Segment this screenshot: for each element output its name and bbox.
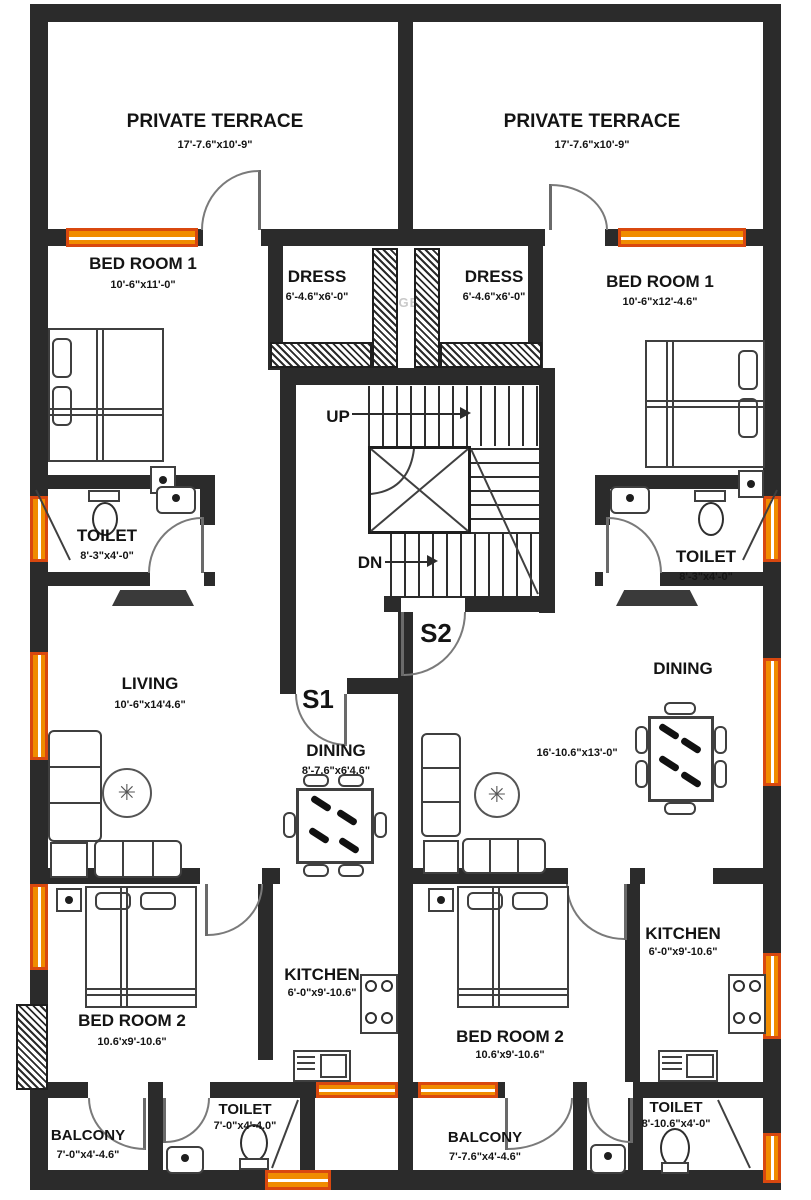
pillow <box>140 892 176 910</box>
room-label-bedroom1-left: BED ROOM 1 <box>89 255 197 272</box>
window-bedroom2-left <box>30 884 48 970</box>
room-label-kitchen-right: KITCHEN <box>645 925 721 942</box>
stool-left <box>50 842 88 878</box>
room-label-toilet-left: TOILET <box>77 527 137 544</box>
chair <box>283 812 296 838</box>
wall-bottomrow-e <box>573 1082 587 1098</box>
door-gap-toiletb-left <box>163 1082 210 1098</box>
plant-icon: ✳ <box>102 768 152 818</box>
bed-line <box>647 406 763 408</box>
room-dim-dining-right: 16'-10.6"x13'-0" <box>536 748 617 759</box>
room-dim-bedroom2-right: 10.6'x9'-10.6" <box>475 1050 544 1061</box>
window-kitchen-left-south <box>316 1082 398 1098</box>
sofa-vertical-right <box>421 733 461 837</box>
room-label-balcony-left: BALCONY <box>51 1128 125 1143</box>
bed-line <box>87 988 195 990</box>
wall-balcony-right-east <box>573 1098 587 1188</box>
sofa-cushion-line <box>423 767 459 769</box>
wall-balcony-left-east <box>148 1098 163 1188</box>
wall-stair-top <box>280 368 555 385</box>
sofa-cushion-line <box>423 801 459 803</box>
door-arc-toiletb-left <box>166 1098 210 1143</box>
window-living-left <box>30 652 48 760</box>
burner-icon <box>749 980 761 992</box>
sofa-cushion-line <box>517 840 519 872</box>
door-gap-niche-right <box>587 1082 633 1098</box>
sink-line <box>297 1068 315 1070</box>
door-gap-bedroom2-left <box>200 868 262 884</box>
burner-icon <box>365 1012 377 1024</box>
door-arc-toilet-right <box>608 517 662 573</box>
chair <box>635 760 648 788</box>
room-dim-kitchen-right: 6'-0"x9'-10.6" <box>649 947 718 958</box>
pillow <box>52 386 72 426</box>
room-label-bedroom1-right: BED ROOM 1 <box>606 273 714 290</box>
floor-plan: TIGER <box>0 0 811 1200</box>
chair <box>338 864 364 877</box>
stair-dn-arrow-icon <box>427 555 438 567</box>
wc-tank <box>661 1162 689 1174</box>
chair <box>714 726 727 754</box>
bedside-knob <box>747 480 755 488</box>
door-label-s2: S2 <box>420 620 452 646</box>
pillow <box>738 398 758 438</box>
room-label-toiletb-left: TOILET <box>218 1102 271 1117</box>
sink-line <box>662 1062 682 1064</box>
room-dim-dress-right: 6'-4.6"x6'-0" <box>463 292 526 303</box>
wardrobe-bedroom2-left <box>16 1004 48 1090</box>
tv-console-right <box>616 590 698 606</box>
window-terrace-left <box>66 228 198 247</box>
burner-icon <box>381 980 393 992</box>
stair-upper-flight <box>368 386 539 446</box>
chair <box>664 702 696 715</box>
tv-console-left <box>112 590 194 606</box>
door-gap-bedroom2-right <box>568 868 628 884</box>
door-gap-balcony-right <box>505 1082 573 1098</box>
stair-dn-label: DN <box>358 554 383 571</box>
window-terrace-right <box>618 228 746 247</box>
room-dim-toilet-right: 8'-3"x4'-0" <box>679 572 733 583</box>
chair <box>635 726 648 754</box>
plant-icon: ✳ <box>474 772 520 818</box>
room-label-dress-right: DRESS <box>465 268 524 285</box>
stair-up-line <box>352 413 462 415</box>
window-toiletb-left-south <box>265 1170 331 1190</box>
wall-toilet-left-bottom-a <box>30 572 150 586</box>
room-dim-terrace-left: 17'-7.6"x10'-9" <box>178 140 253 151</box>
door-gap-s2 <box>401 598 465 612</box>
wardrobe-dress-left-vertical <box>372 248 398 368</box>
stair-winders <box>471 446 539 534</box>
stair-up-label: UP <box>326 408 350 425</box>
room-dim-toiletb-right: 8'-10.6"x4'-0" <box>642 1119 711 1130</box>
door-leaf-niche-right <box>630 1098 633 1143</box>
room-dim-balcony-right: 7'-7.6"x4'-4.6" <box>449 1152 521 1163</box>
room-dim-toilet-left: 8'-3"x4'-0" <box>80 551 134 562</box>
room-label-living-left: LIVING <box>122 675 179 692</box>
sink-line <box>297 1062 315 1064</box>
wall-kitchen-left-west <box>258 884 273 1060</box>
burner-icon <box>381 1012 393 1024</box>
door-arc-terrace-right <box>551 184 608 230</box>
wall-bottomrow-c <box>210 1082 273 1098</box>
room-label-terrace-right: PRIVATE TERRACE <box>504 112 681 131</box>
door-arc-bedroom2-left <box>208 884 263 936</box>
pillow <box>512 892 548 910</box>
bed-line <box>672 342 674 466</box>
burner-icon <box>749 1012 761 1024</box>
room-dim-dress-left: 6'-4.6"x6'-0" <box>286 292 349 303</box>
bed-line <box>50 414 162 416</box>
room-label-toiletb-right: TOILET <box>649 1100 702 1115</box>
sink-basin <box>686 1054 714 1078</box>
door-gap-toilet-left <box>150 572 204 586</box>
room-label-balcony-right: BALCONY <box>448 1130 522 1145</box>
window-toiletb-right <box>763 1133 781 1183</box>
door-arc-niche-right <box>587 1098 630 1143</box>
bed-line <box>459 994 567 996</box>
sofa-horizontal-left <box>94 840 182 878</box>
sink-line <box>662 1056 682 1058</box>
room-dim-living-left: 10'-6"x14'4.6" <box>114 700 185 711</box>
burner-icon <box>365 980 377 992</box>
stool-right <box>423 840 459 874</box>
door-gap-terrace-right <box>545 229 605 246</box>
wall-bottomrow-b <box>148 1082 163 1098</box>
burner-icon <box>733 980 745 992</box>
chair <box>664 802 696 815</box>
wardrobe-dress-right-horizontal <box>440 342 542 368</box>
room-dim-bedroom1-left: 10'-6"x11'-0" <box>110 280 175 291</box>
basin-tap <box>626 494 634 502</box>
sofa-cushion-line <box>489 840 491 872</box>
room-label-kitchen-left: KITCHEN <box>284 966 360 983</box>
window-toilet-left <box>30 496 48 562</box>
wc-tank <box>239 1158 269 1170</box>
wc-tank <box>694 490 726 502</box>
sofa-vertical-left <box>48 730 102 842</box>
sink-line <box>297 1056 315 1058</box>
wc-bowl <box>698 502 724 536</box>
wall-bedroom2-right-top-b <box>630 868 645 884</box>
wall-kitchen-right-west <box>625 884 640 1082</box>
wall-stair-right <box>539 368 555 613</box>
bed-line <box>459 988 567 990</box>
door-arc-terrace-left <box>201 170 259 230</box>
room-label-terrace-left: PRIVATE TERRACE <box>127 112 304 131</box>
room-dim-kitchen-left: 6'-0"x9'-10.6" <box>288 988 357 999</box>
bed-line <box>647 400 763 402</box>
sink-line <box>662 1068 682 1070</box>
basin-tap <box>181 1154 189 1162</box>
door-gap-toilet-right <box>606 572 660 586</box>
wall-center-top <box>398 4 413 246</box>
wall-bottomrow-f <box>633 1082 780 1098</box>
wall-bedroom2-right-top-c <box>713 868 780 884</box>
bed-line <box>96 330 98 460</box>
basin-tap <box>172 494 180 502</box>
stair-landing <box>368 446 471 534</box>
chair <box>374 812 387 838</box>
wall-toilet-right-bottom-b <box>595 572 603 586</box>
room-label-dress-left: DRESS <box>288 268 347 285</box>
stair-lower-flight <box>390 534 539 596</box>
wall-toilet-left-bottom-b <box>204 572 215 586</box>
door-arc-toilet-left <box>148 517 202 573</box>
room-dim-bedroom2-left: 10.6'x9'-10.6" <box>97 1037 166 1048</box>
bed-line <box>87 994 195 996</box>
sofa-cushion-line <box>152 842 154 876</box>
stair-up-arrow-icon <box>460 407 471 419</box>
stair-dn-line <box>385 561 429 563</box>
wall-center-bottom <box>398 612 413 1188</box>
bedside-knob <box>159 476 167 484</box>
wall-stair-left <box>280 368 296 694</box>
door-leaf-bedroom2-right <box>624 884 627 940</box>
pillow <box>52 338 72 378</box>
door-label-s1: S1 <box>302 686 334 712</box>
room-label-dining-left: DINING <box>306 742 366 759</box>
sofa-cushion-line <box>50 802 100 804</box>
bedside-knob <box>437 896 445 904</box>
door-arc-bedroom2-right <box>566 884 624 940</box>
window-bedroom2-right-south <box>418 1082 498 1098</box>
room-dim-bedroom1-right: 10'-6"x12'-4.6" <box>623 297 698 308</box>
wardrobe-dress-right-vertical <box>414 248 440 368</box>
wc-tank <box>88 490 120 502</box>
sofa-cushion-line <box>50 766 100 768</box>
dining-table-left <box>296 788 374 864</box>
wardrobe-dress-left-horizontal <box>270 342 372 368</box>
bed-line <box>666 342 668 466</box>
bed-line <box>50 408 162 410</box>
chair <box>303 864 329 877</box>
window-dining-right <box>763 658 781 786</box>
wall-s1 <box>347 678 398 694</box>
room-label-toilet-right: TOILET <box>676 548 736 565</box>
room-dim-terrace-right: 17'-7.6"x10'-9" <box>555 140 630 151</box>
room-label-bedroom2-right: BED ROOM 2 <box>456 1028 564 1045</box>
bed-line <box>102 330 104 460</box>
burner-icon <box>733 1012 745 1024</box>
room-label-bedroom2-left: BED ROOM 2 <box>78 1012 186 1029</box>
pillow <box>738 350 758 390</box>
door-gap-terrace-left <box>203 229 261 246</box>
room-dim-balcony-left: 7'-0"x4'-4.6" <box>57 1150 120 1161</box>
bedside-knob <box>65 896 73 904</box>
sofa-cushion-line <box>122 842 124 876</box>
basin-tap <box>604 1152 612 1160</box>
sofa-horizontal-right <box>462 838 546 874</box>
window-toilet-right <box>763 496 781 562</box>
room-dim-toiletb-left: 7'-0"x4'-4.0" <box>214 1121 277 1132</box>
chair <box>714 760 727 788</box>
sink-basin <box>320 1054 347 1078</box>
door-gap-balcony-left <box>88 1082 148 1098</box>
room-label-dining-right: DINING <box>653 660 713 677</box>
room-dim-dining-left: 8'-7.6"x6'4.6" <box>302 766 370 777</box>
